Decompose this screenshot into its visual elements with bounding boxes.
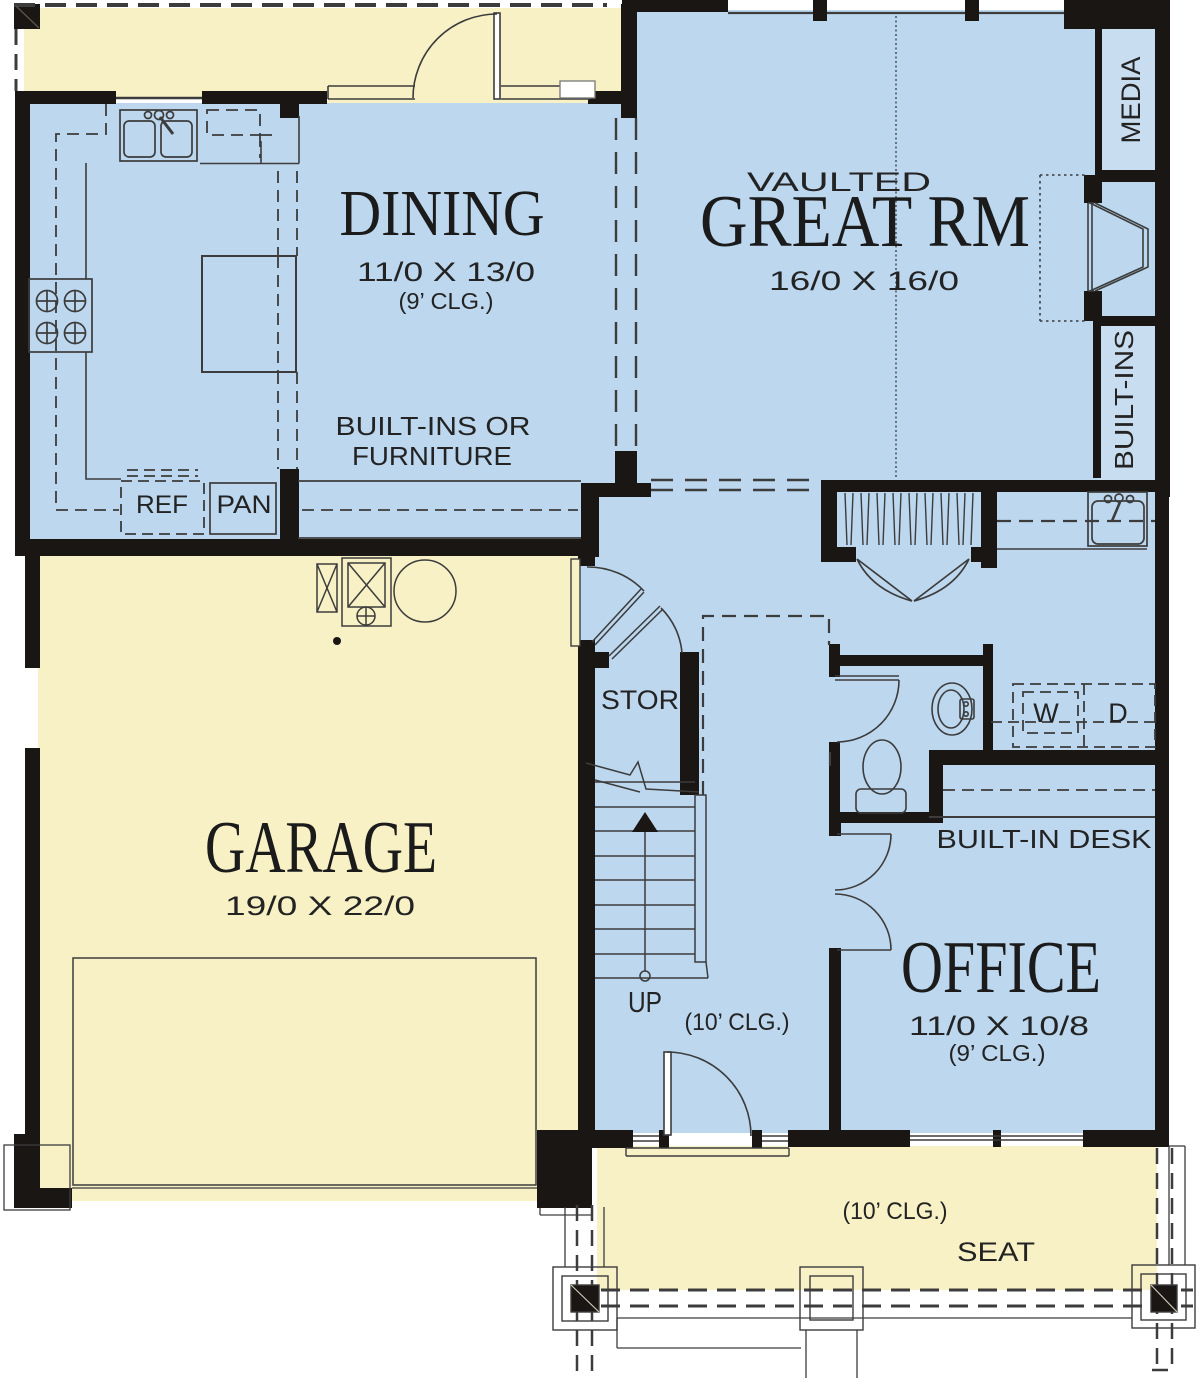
- svg-text:W: W: [1033, 698, 1059, 728]
- svg-text:D: D: [1108, 698, 1128, 728]
- svg-text:(9’ CLG.): (9’ CLG.): [399, 288, 494, 314]
- svg-text:DINING: DINING: [340, 177, 545, 250]
- svg-text:(10’ CLG.): (10’ CLG.): [685, 1009, 790, 1036]
- svg-text:STOR: STOR: [601, 685, 679, 715]
- svg-text:(10’ CLG.): (10’ CLG.): [843, 1198, 948, 1225]
- svg-text:19/0 X 22/0: 19/0 X 22/0: [225, 891, 415, 921]
- svg-text:BUILT-INS: BUILT-INS: [1109, 330, 1139, 470]
- svg-text:FURNITURE: FURNITURE: [352, 441, 512, 471]
- svg-text:BUILT-IN DESK: BUILT-IN DESK: [937, 824, 1153, 854]
- svg-text:11/0 X 10/8: 11/0 X 10/8: [909, 1011, 1089, 1041]
- svg-text:(9’ CLG.): (9’ CLG.): [949, 1040, 1046, 1066]
- svg-text:GREAT RM: GREAT RM: [700, 181, 1030, 263]
- svg-text:11/0 X 13/0: 11/0 X 13/0: [357, 257, 535, 287]
- svg-text:PAN: PAN: [217, 491, 272, 519]
- svg-text:OFFICE: OFFICE: [901, 927, 1101, 1009]
- svg-text:MEDIA: MEDIA: [1116, 57, 1146, 144]
- svg-text:REF: REF: [136, 491, 188, 519]
- svg-text:GARAGE: GARAGE: [205, 807, 437, 889]
- svg-text:BUILT-INS OR: BUILT-INS OR: [336, 411, 531, 441]
- svg-text:SEAT: SEAT: [957, 1237, 1035, 1267]
- svg-text:16/0 X 16/0: 16/0 X 16/0: [769, 266, 959, 296]
- svg-text:UP: UP: [628, 987, 662, 1019]
